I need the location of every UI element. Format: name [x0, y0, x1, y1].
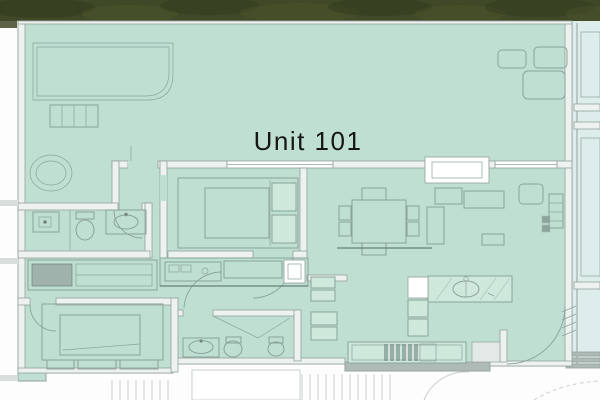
tall-cabinets [408, 277, 428, 336]
floor-plan-page: Unit 101 [0, 0, 600, 400]
kitchen-island [428, 276, 512, 302]
floor-plan-svg: Unit 101 [0, 0, 600, 400]
entry-bench [472, 342, 500, 362]
kitchen-counter-south [348, 342, 466, 363]
unit-label: Unit 101 [254, 126, 363, 156]
corridor-landing [192, 370, 300, 400]
